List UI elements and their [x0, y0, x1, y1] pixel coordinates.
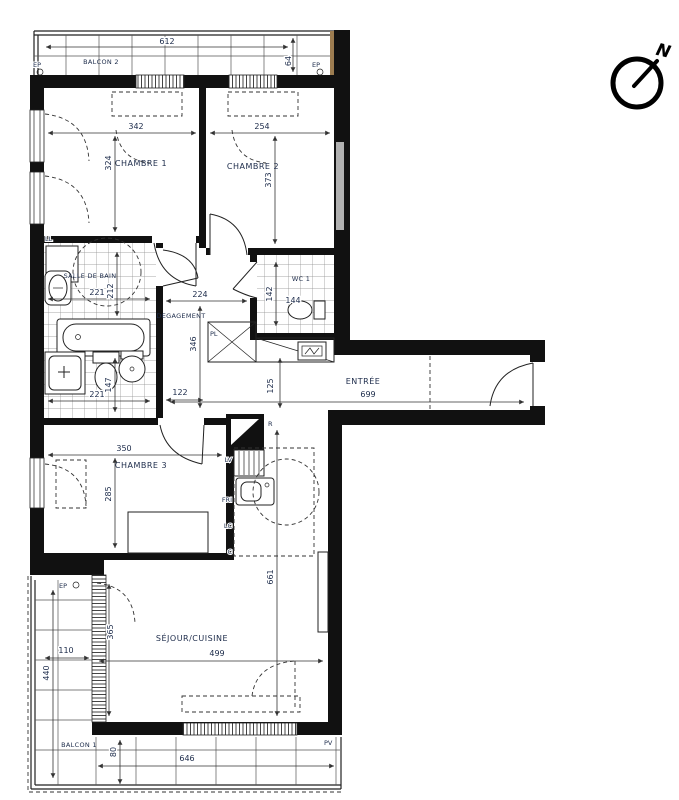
dim-sejour-depth2: 365 [106, 624, 115, 639]
tag-shaft: R [268, 420, 273, 428]
dim-chambre1-width: 342 [128, 122, 143, 131]
tag-fridge: FRI [222, 496, 232, 504]
tag-laundry: LC [224, 522, 233, 530]
dim-balcon1-col-width: 110 [58, 646, 73, 655]
balcony-2-grid [34, 35, 334, 75]
dim-sdb-width: 221 [89, 288, 104, 297]
wardrobe-chambre1-dashed [112, 92, 182, 116]
label-wc: WC 1 [292, 275, 310, 283]
label-degagement: DEGAGEMENT [156, 312, 205, 320]
closet-pl [208, 322, 256, 362]
dim-sdb-depth2: 147 [104, 377, 113, 392]
compass-needle [634, 61, 657, 86]
dim-degagement-width: 224 [192, 290, 207, 299]
ep-drain-balcon1 [73, 582, 79, 588]
balcony-2 [34, 31, 335, 75]
label-entree: ENTRÉE [346, 375, 381, 386]
floorplan-drawing: BALCON 2 CHAMBRE 1 CHAMBRE 2 SALLE DE BA… [0, 0, 679, 800]
window-swing-chambre1-b [45, 176, 89, 223]
wall-wc-bottom [250, 333, 334, 340]
window-chambre3-left [30, 458, 44, 508]
dim-sejour-depth: 661 [266, 569, 275, 584]
dishwasher [234, 450, 264, 476]
dim-degagement-width2: 122 [172, 388, 187, 397]
wall-sejour-right [328, 410, 342, 735]
ep-drain-top-right [317, 69, 323, 75]
dim-balcon1-col-depth: 440 [42, 665, 51, 680]
label-chambre3: CHAMBRE 3 [115, 461, 167, 470]
bidet [119, 351, 145, 382]
tag-closet-pl: PL [210, 330, 218, 338]
dim-degagement-depth: 346 [189, 336, 198, 351]
dim-chambre3-depth: 285 [104, 486, 113, 501]
dim-sdb-width2: 221 [89, 390, 104, 399]
floorplan-page: BALCON 2 CHAMBRE 1 CHAMBRE 2 SALLE DE BA… [0, 0, 679, 800]
dim-balcon2-width: 612 [159, 37, 174, 46]
tag-ep-top-left: EP [33, 61, 41, 69]
label-sejour: SÉJOUR/CUISINE [156, 632, 228, 643]
wardrobe-chambre2-dashed [228, 92, 298, 116]
wardrobe-chambre2-swing [232, 130, 266, 163]
shower-tray [45, 352, 85, 394]
dim-sejour-width: 499 [209, 649, 224, 658]
dim-sdb-depth: 212 [106, 283, 115, 298]
balcony-2-railing [34, 31, 334, 75]
tag-pv: PV [324, 739, 333, 747]
dim-chambre1-depth: 324 [104, 155, 113, 170]
wall-corridor-top [334, 340, 545, 355]
tag-cooker: C [227, 548, 232, 556]
label-chambre2: CHAMBRE 2 [227, 162, 279, 171]
sliding-door-pocket-dashed [182, 696, 300, 712]
window-chambre2-balcony [229, 75, 277, 88]
door-entrance [490, 363, 533, 406]
label-chambre1: CHAMBRE 1 [115, 159, 167, 168]
window-chambre1-left-b [30, 172, 44, 224]
sliding-door-sejour-balcony [183, 723, 297, 735]
door-bathroom [163, 250, 198, 286]
dim-wc-depth: 142 [265, 286, 274, 301]
window-sejour-left [92, 575, 106, 722]
wall-top [30, 75, 350, 88]
label-salle-de-bain: SALLE DE BAIN [64, 272, 117, 280]
window-chambre1-balcony [136, 75, 184, 88]
label-balcon1: BALCON 1 [61, 741, 97, 749]
wall-chambre3-bottom [44, 553, 226, 560]
wall-corridor-bottom [334, 410, 545, 425]
dim-balcon1-depth: 80 [109, 747, 118, 757]
window-swing-chambre1-a [45, 114, 89, 161]
wall-chambre1-2-partition [199, 88, 206, 248]
electric-panel [298, 342, 326, 360]
dim-balcon1-width: 646 [179, 754, 194, 763]
tag-ep-top-right: EP [312, 61, 320, 69]
tag-dishwasher: LV [225, 456, 233, 464]
label-balcon2: BALCON 2 [83, 58, 119, 66]
dim-balcon2-depth: 64 [284, 56, 293, 66]
dim-wc-width: 144 [285, 296, 300, 305]
dim-chambre3-width: 350 [116, 444, 131, 453]
dim-chambre2-depth: 373 [264, 172, 273, 187]
duct-shaft [226, 414, 264, 450]
closet-chambre3 [128, 512, 208, 553]
tag-washing-machine: LL [45, 235, 53, 243]
sliding-door-swing-dashed [252, 661, 295, 696]
window-swing-chambre3 [45, 464, 86, 506]
dim-entree-length: 699 [360, 390, 375, 399]
wall-pilaster [336, 142, 344, 230]
door-chambre3 [160, 425, 204, 464]
compass: N [613, 40, 673, 107]
radiator [318, 552, 328, 632]
tag-ep-balcon1: EP [59, 582, 67, 590]
window-chambre1-left-a [30, 110, 44, 162]
wall-sw-corner [30, 558, 104, 575]
dim-chambre2-width: 254 [254, 122, 269, 131]
compass-north-label: N [654, 40, 673, 63]
kitchen [226, 414, 319, 556]
dim-entree-width: 125 [266, 378, 275, 393]
bathtub [57, 319, 150, 356]
sejour-extras [97, 552, 328, 712]
